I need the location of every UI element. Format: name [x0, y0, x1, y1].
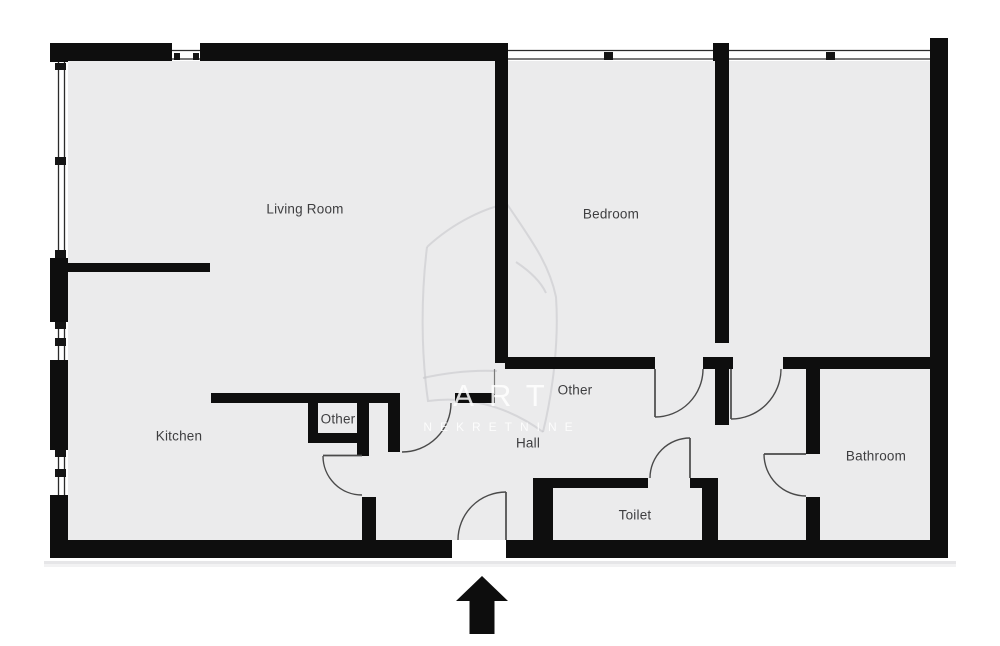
- wall-kitchen-hall: [211, 393, 400, 403]
- wall-hall-top-left: [505, 357, 655, 369]
- watermark-text-art: ART: [446, 378, 559, 414]
- window-left-livingroom: [50, 62, 68, 258]
- wall-t-cap: [703, 357, 733, 369]
- window-left-kitchen-upper: [50, 322, 68, 360]
- entrance-arrow-icon: [456, 576, 508, 634]
- watermark-text-nekretnine: NEKRETNINE: [419, 420, 580, 434]
- room-label-bedroom: Bedroom: [583, 207, 639, 222]
- wall-toilet-top-left: [553, 478, 648, 488]
- room-label-toilet: Toilet: [619, 508, 652, 523]
- room-label-bathroom: Bathroom: [846, 449, 906, 464]
- window-top-bedroom: [508, 43, 713, 61]
- floor-plan: Living Room Bedroom Kitchen Other Other …: [0, 0, 1000, 646]
- wall-toilet-right: [702, 478, 718, 542]
- entrance-threshold: [452, 540, 506, 562]
- wall-livingroom-door-stub: [388, 403, 400, 452]
- wall-kitchen-livingroom-stub: [68, 263, 210, 272]
- wall-bedroom-room2: [715, 61, 729, 343]
- window-left-kitchen-lower: [50, 450, 68, 495]
- wall-toilet-left: [533, 478, 553, 542]
- room-label-kitchen: Kitchen: [156, 429, 202, 444]
- wall-livingroom-bedroom: [495, 61, 508, 363]
- bottom-wall-shadow-soft: [44, 564, 956, 567]
- wall-below-closet: [362, 497, 376, 542]
- room-label-hall: Hall: [516, 436, 540, 451]
- wall-t-stem: [715, 369, 729, 425]
- wall-bathroom-left-lower: [806, 497, 820, 542]
- window-top-livingroom: [172, 43, 200, 61]
- floor-plan-drawing: [0, 0, 1000, 646]
- wall-bathroom-left-upper: [806, 369, 820, 454]
- room-label-living-room: Living Room: [266, 202, 343, 217]
- wall-closet-right: [357, 403, 369, 456]
- room-label-closet: Other: [321, 412, 356, 427]
- bottom-wall-shadow: [44, 561, 956, 564]
- window-top-room2: [729, 43, 930, 61]
- wall-right: [930, 38, 948, 558]
- room-label-hall-upper: Other: [558, 383, 593, 398]
- wall-hall-top-right: [783, 357, 933, 369]
